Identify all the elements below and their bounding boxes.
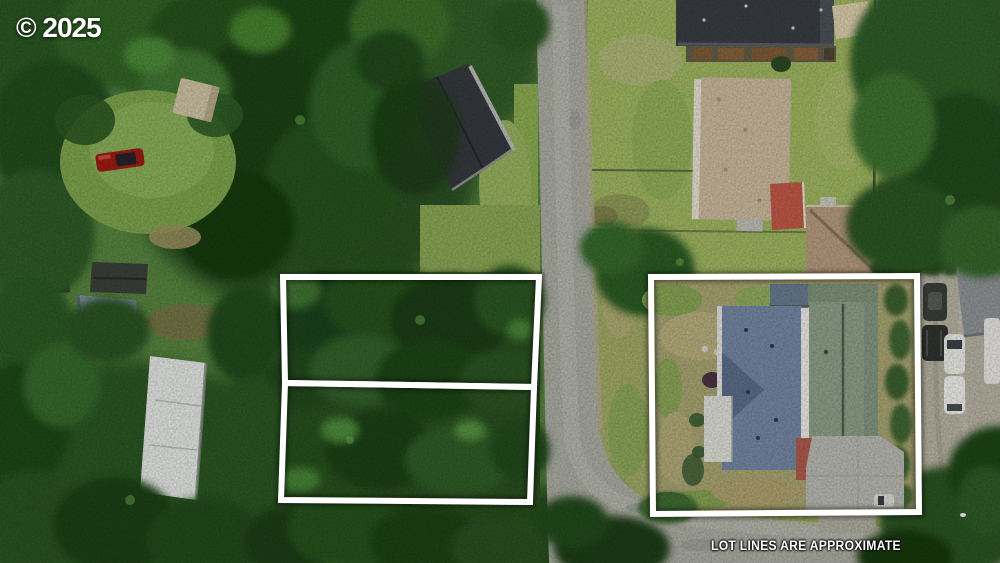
aerial-photo-art <box>0 0 1000 563</box>
copyright-watermark: © 2025 <box>16 12 101 44</box>
disclaimer-text: LOT LINES ARE APPROXIMATE <box>711 538 901 553</box>
aerial-listing-photo: © 2025 LOT LINES ARE APPROXIMATE <box>0 0 1000 563</box>
